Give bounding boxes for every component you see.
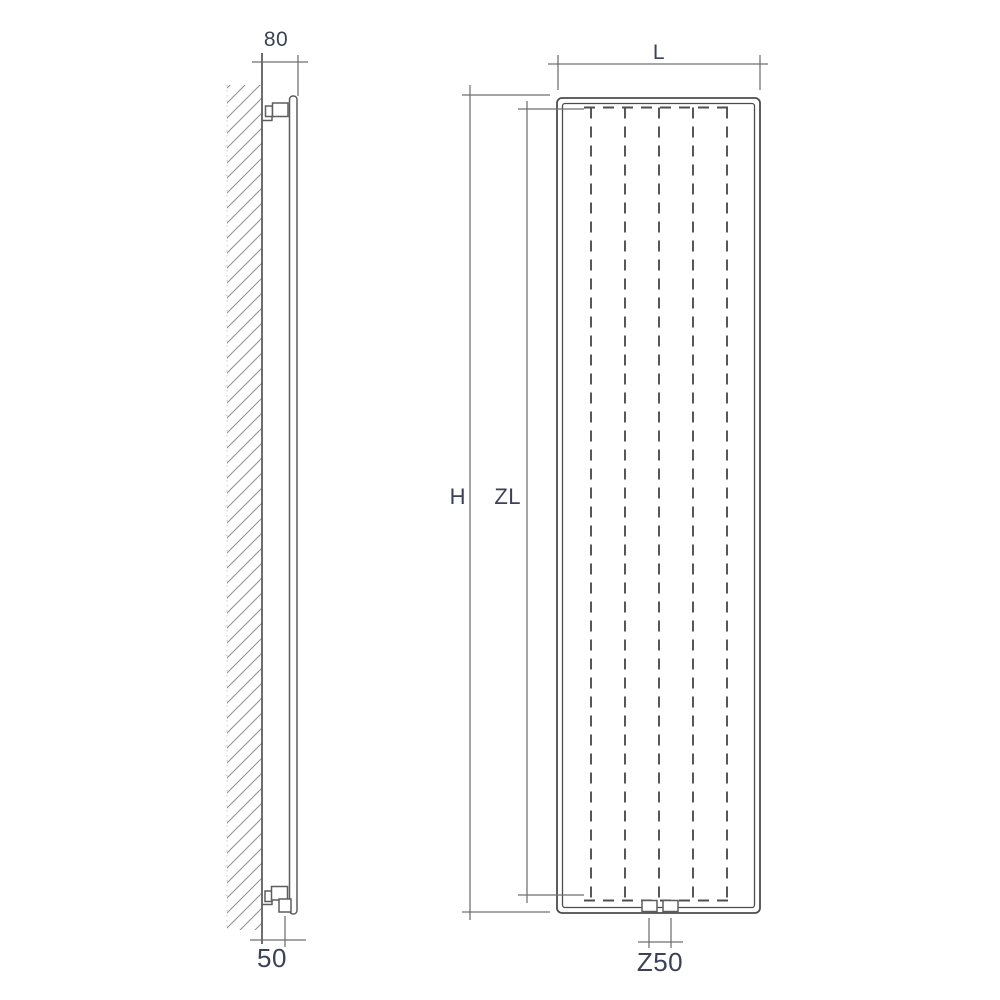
diagram-canvas: 80 50 L [0, 0, 1000, 1000]
bottom-bracket-arm [272, 887, 288, 901]
top-bracket-clip [266, 106, 273, 117]
wall-hatching [227, 85, 262, 930]
top-bracket-arm [273, 103, 289, 117]
label-Z50: Z50 [637, 947, 683, 977]
dimension-width-L: L [548, 41, 768, 90]
side-pipe-stub [279, 899, 291, 912]
front-view: L H ZL Z50 [450, 41, 768, 977]
connection-stub-left [642, 901, 657, 912]
radiator-front-outer [557, 98, 760, 913]
connection-stub-right [663, 901, 678, 912]
radiator-panel-profile [290, 96, 298, 914]
side-view: 80 50 [227, 28, 308, 973]
top-wall-bracket [262, 103, 288, 121]
dimension-connection-Z50: Z50 [637, 918, 683, 977]
label-L: L [653, 41, 665, 64]
bottom-wall-bracket [262, 887, 291, 913]
label-50: 50 [257, 943, 287, 973]
label-H: H [450, 484, 466, 509]
label-ZL: ZL [494, 484, 521, 509]
radiator-dimension-diagram: 80 50 L [0, 0, 1000, 1000]
label-80: 80 [264, 28, 288, 51]
